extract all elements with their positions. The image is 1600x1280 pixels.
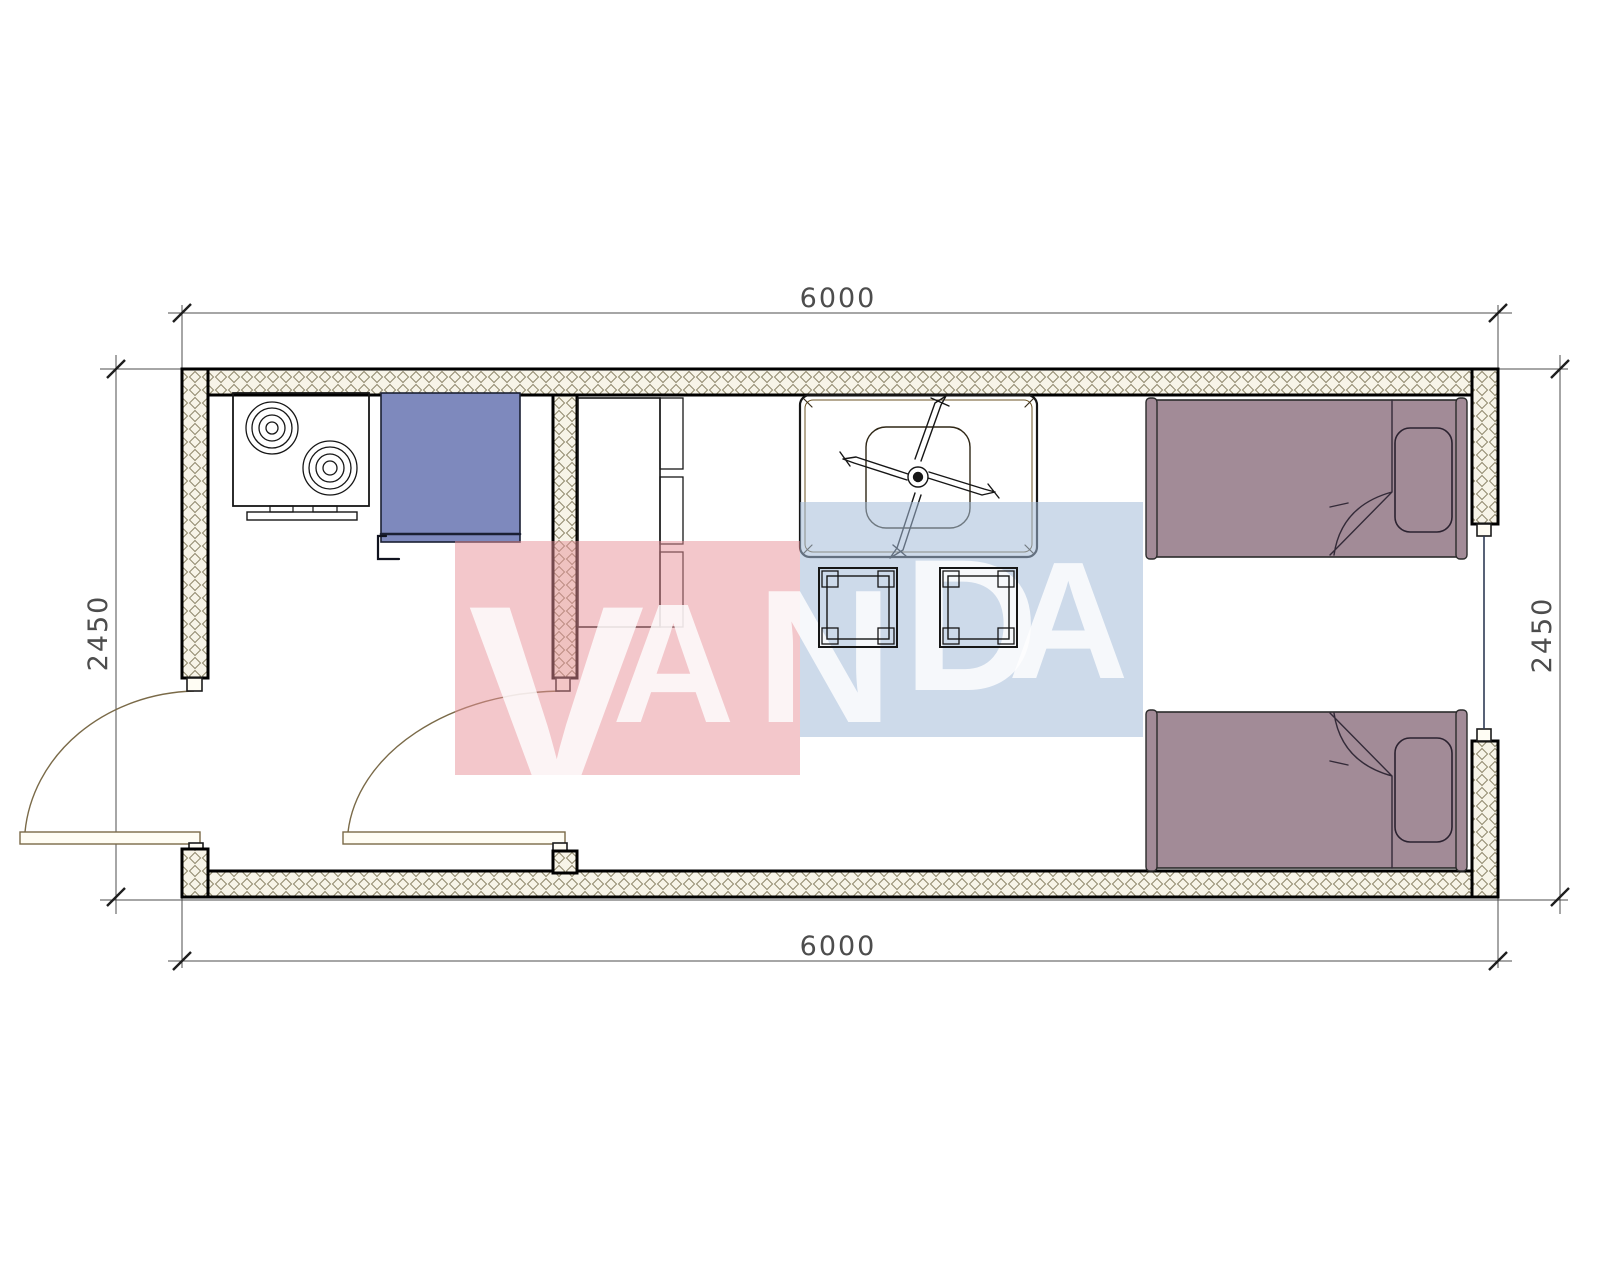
watermark-word: V A N D A <box>468 520 1129 847</box>
wall-right-lower <box>1472 741 1498 897</box>
watermark-letter: A <box>612 569 735 759</box>
wall-door-jamb <box>553 851 577 873</box>
floor-plan-svg: 6000 6000 2450 2450 <box>0 0 1600 1280</box>
dim-label-top: 6000 <box>800 283 877 314</box>
dim-label-right: 2450 <box>1527 597 1558 674</box>
single-bed-bottom <box>1146 710 1467 871</box>
wall-top <box>182 369 1498 395</box>
wall-cap <box>1477 729 1491 741</box>
pillow <box>1395 738 1452 842</box>
dim-label-bottom: 6000 <box>800 931 877 962</box>
bed-headboard <box>1456 710 1467 871</box>
dim-label-left: 2450 <box>83 595 114 672</box>
watermark-letter: N <box>756 551 893 763</box>
wall-left <box>182 369 208 678</box>
pillow <box>1395 428 1452 532</box>
bed-headboard <box>1456 398 1467 559</box>
watermark: V A N D A <box>455 502 1143 847</box>
wall-cap <box>187 678 202 691</box>
single-bed-top <box>1146 398 1467 559</box>
wall-bottom <box>182 871 1498 897</box>
floor-plan-canvas: 6000 6000 2450 2450 <box>0 0 1600 1280</box>
bed-footboard <box>1146 398 1157 559</box>
wall-right-upper <box>1472 369 1498 524</box>
blue-appliance <box>378 393 520 559</box>
bed-footboard <box>1146 710 1157 871</box>
wall-corner-jamb <box>182 849 208 897</box>
wall-cap <box>1477 524 1491 536</box>
entry-door-left <box>20 691 203 853</box>
watermark-letter: A <box>1008 528 1129 714</box>
door-leaf <box>20 832 200 844</box>
burner <box>246 402 357 495</box>
cooktop-stove <box>233 393 369 520</box>
